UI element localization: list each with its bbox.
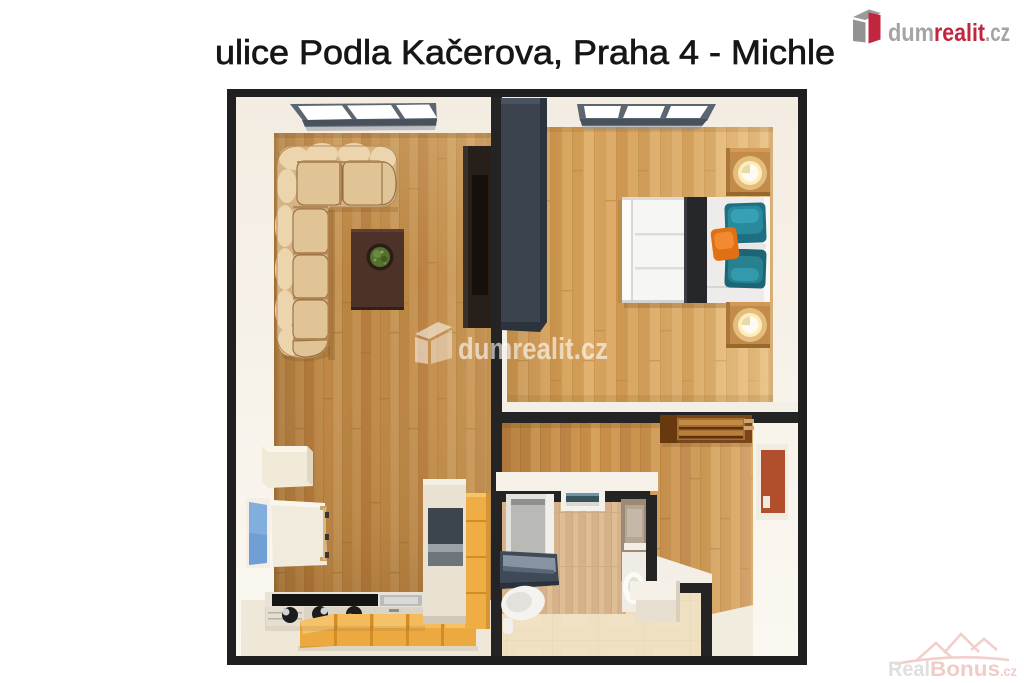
- svg-text:ulice Podla Kačerova, Praha 4: ulice Podla Kačerova, Praha 4 - Michle: [215, 34, 835, 72]
- svg-text:.cz: .cz: [1000, 663, 1017, 679]
- svg-text:dum: dum: [888, 19, 934, 47]
- svg-text:dumrealit.cz: dumrealit.cz: [458, 331, 608, 366]
- svg-text:Real: Real: [888, 658, 930, 681]
- svg-text:Bonus: Bonus: [930, 658, 1000, 681]
- svg-text:.cz: .cz: [985, 19, 1010, 47]
- svg-text:realit: realit: [934, 19, 986, 47]
